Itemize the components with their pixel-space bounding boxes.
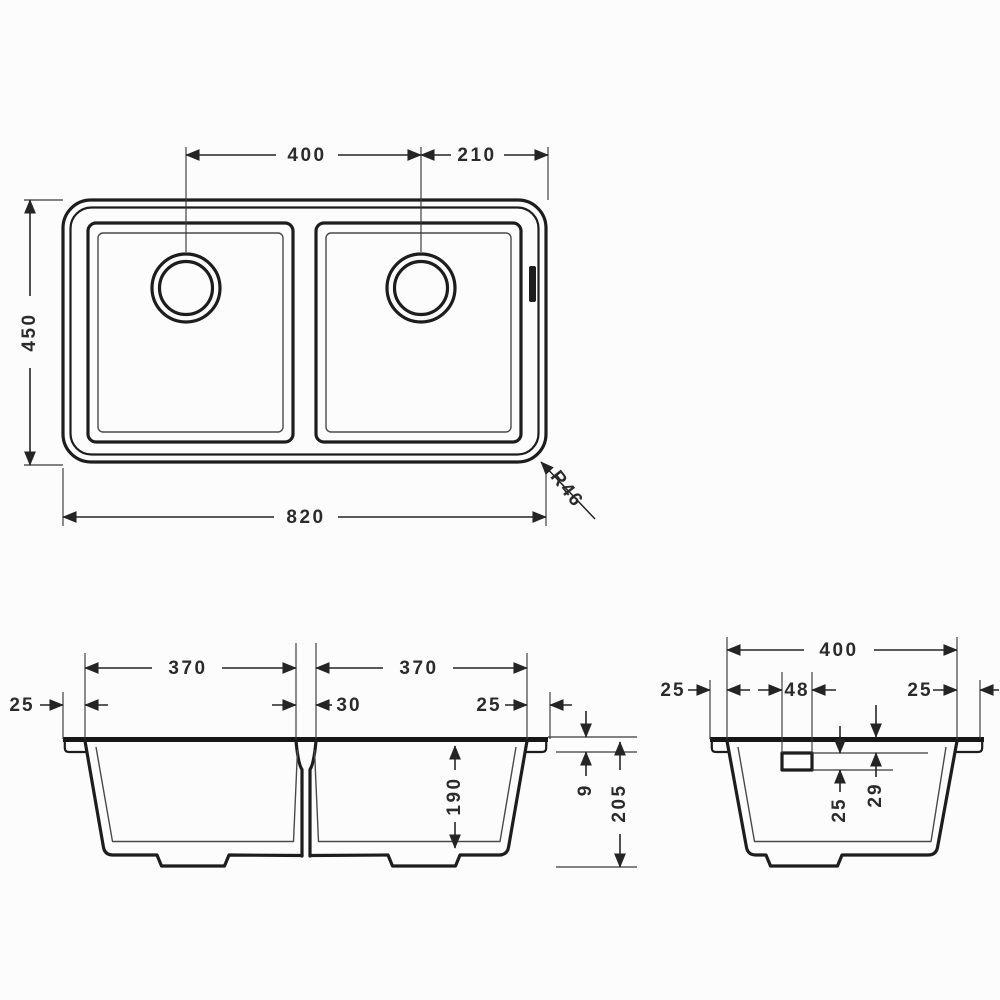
- drawing-svg: 400 210 450 820 R46 370 370 25 3: [0, 0, 1000, 1000]
- bowl-right-outline: [316, 223, 521, 442]
- side-bowl-inner: [738, 747, 946, 842]
- dim-370-left: 370: [168, 658, 207, 679]
- dim-25-side-right: 25: [907, 680, 932, 701]
- dim-25-front-right: 25: [476, 695, 501, 716]
- front-section-view: 370 370 25 30 25 190 9 205: [9, 643, 637, 867]
- top-view: 400 210 450 820 R46: [19, 145, 595, 528]
- front-bowl-right-inner: [315, 747, 517, 842]
- dim-25-overflow: 25: [829, 797, 850, 822]
- sink-rim-outline: [71, 208, 539, 455]
- extension-lines-front: [63, 643, 637, 867]
- front-bowl-right-wall: [310, 741, 527, 866]
- dim-30-divider: 30: [336, 695, 361, 716]
- front-bowl-left-wall: [85, 741, 302, 866]
- drain-right-inner: [395, 262, 448, 315]
- front-divider: [296, 741, 316, 856]
- technical-drawing: 400 210 450 820 R46 370 370 25 3: [0, 0, 1000, 1000]
- drain-left-inner: [160, 262, 213, 315]
- extension-lines-top: [24, 147, 548, 526]
- dim-205-height: 205: [609, 783, 630, 822]
- dim-370-right: 370: [399, 658, 438, 679]
- side-section-view: 400 25 48 25 25 29: [660, 637, 999, 866]
- drain-left-outer: [152, 254, 220, 322]
- side-rim-lips: [712, 742, 982, 752]
- dim-9-rim: 9: [575, 784, 596, 797]
- dim-25-side-left: 25: [660, 680, 685, 701]
- drain-right-outer: [387, 254, 455, 322]
- dim-190-depth: 190: [444, 776, 465, 815]
- dim-450: 450: [19, 312, 40, 351]
- dim-48-overflow: 48: [784, 680, 809, 701]
- front-rim-lips: [65, 742, 546, 752]
- dim-29-overflow: 29: [865, 782, 886, 807]
- dim-400-side: 400: [819, 640, 858, 661]
- dim-400-top: 400: [287, 145, 326, 166]
- dim-25-front-left: 25: [9, 695, 34, 716]
- overflow-slot-plan: [529, 266, 536, 302]
- sink-outer-outline: [63, 200, 546, 462]
- overflow-slot-section: [782, 753, 812, 770]
- dim-820: 820: [286, 507, 325, 528]
- dim-210: 210: [457, 145, 496, 166]
- front-bowl-left-inner: [96, 747, 298, 842]
